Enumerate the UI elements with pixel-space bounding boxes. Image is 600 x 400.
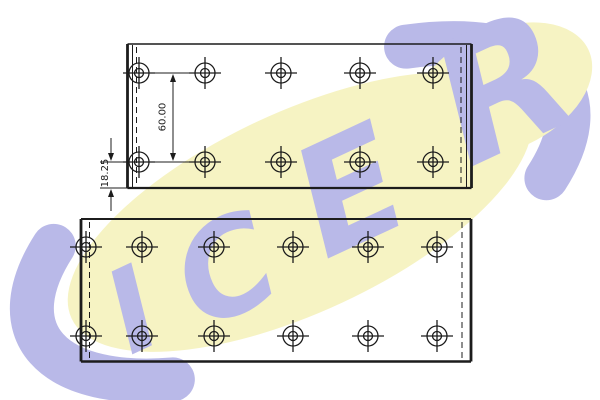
hole-marker: [417, 57, 449, 89]
hole-marker: [189, 146, 221, 178]
hole-marker: [265, 57, 297, 89]
lower-lining-plate: [70, 219, 471, 362]
hole-marker: [421, 231, 453, 263]
hole-marker: [70, 320, 102, 352]
dimension-arrowhead: [170, 153, 176, 161]
brake-lining-drawing: 60.0018.25: [0, 0, 600, 400]
hole-marker: [126, 320, 158, 352]
hole-marker: [265, 146, 297, 178]
hole-marker: [189, 57, 221, 89]
dimension-label: 60.00: [158, 103, 169, 132]
hole-marker: [126, 231, 158, 263]
hole-marker: [344, 146, 376, 178]
hole-marker: [277, 320, 309, 352]
hole-marker: [352, 231, 384, 263]
dimension-arrowhead: [108, 189, 114, 197]
hole-marker: [70, 231, 102, 263]
dimension-60-00: 60.00: [150, 73, 190, 162]
upper-lining-plate: [123, 44, 472, 188]
hole-marker: [277, 231, 309, 263]
hole-marker: [352, 320, 384, 352]
hole-marker: [198, 231, 230, 263]
hole-marker: [344, 57, 376, 89]
dimension-label: 18.25: [100, 159, 111, 188]
hole-marker: [421, 320, 453, 352]
hole-marker: [417, 146, 449, 178]
hole-marker: [198, 320, 230, 352]
dimension-arrowhead: [170, 74, 176, 82]
dimension-18-25: 18.25: [100, 138, 152, 211]
technical-drawing-page: ICER 60.0018.25: [0, 0, 600, 400]
